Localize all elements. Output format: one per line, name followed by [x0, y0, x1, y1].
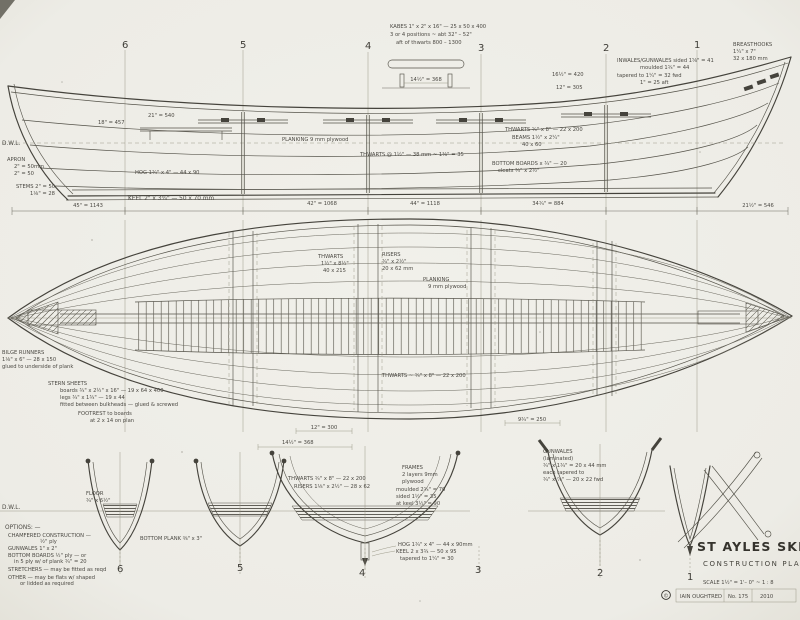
- keel-note: KEEL 2 x 3¾ — 50 x 95: [396, 549, 457, 555]
- stern-sheets-note: legs ¾" x 1¾" — 19 x 44: [60, 395, 126, 401]
- keel-note: KEEL 2" x 3¾" — 50 x 70 mm: [128, 196, 214, 202]
- bilge-runners-note: glued to underside of plank: [2, 364, 73, 370]
- dim-label: 44" = 1118: [410, 201, 440, 207]
- thwarts-note: THWARTS ¾" x 8" — 22 x 200: [287, 476, 366, 482]
- gunwales-note: (laminated): [543, 456, 573, 462]
- beams-note: 40 x 60: [522, 142, 542, 148]
- planking-note: 9 mm plywood: [428, 284, 466, 290]
- dim-label: 45" = 1143: [73, 203, 103, 209]
- stern-sheets-note: STERN SHEETS: [48, 381, 87, 387]
- dim-label: 34¾" = 884: [532, 201, 564, 207]
- footrest-note: at 2 x 14 on plan: [90, 418, 134, 424]
- kabe-note: KABES 1" x 2" x 16" — 25 x 50 x 400: [390, 24, 486, 30]
- options-heading: OPTIONS: —: [5, 525, 41, 531]
- frames-note: at keel 3½" = 90: [396, 500, 440, 507]
- inwales-note: 1" = 25 aft: [640, 80, 669, 86]
- frames-note: plywood: [402, 479, 424, 485]
- bottom-plank-note: BOTTOM PLANK ⅜" x 3": [140, 536, 202, 542]
- station-label: 1: [687, 572, 693, 583]
- bilge-runners-note: BILGE RUNNERS: [2, 350, 44, 356]
- bottom-boards-note: cleats ¾" x 2½": [498, 167, 540, 174]
- plan-dim: 12" = 300: [311, 425, 338, 431]
- station-label: 5: [240, 40, 246, 51]
- stern-sheets-note: fitted between bulkheads — glued & screw…: [60, 402, 178, 408]
- beams-note: BEAMS 1½" x 2¼": [512, 134, 560, 141]
- station-label: 3: [478, 43, 484, 54]
- thwarts-note: 1½" x 8½": [321, 260, 349, 267]
- dim-label: 42" = 1068: [307, 201, 337, 207]
- thwart-dim-note: THWARTS ¾" x 8" — 22 x 200: [504, 127, 583, 133]
- sheet-number: No. 175: [728, 594, 748, 600]
- gunwales-note: GUNWALES: [543, 449, 573, 455]
- kabe-detail-dim: 14½" = 368: [410, 76, 442, 83]
- drawing-subtitle: CONSTRUCTION PLAN: [703, 560, 800, 568]
- thwarts-size-note: THWARTS ~ ¾" x 8" — 22 x 200: [381, 373, 466, 379]
- apron-note: 2" = 50mm: [14, 164, 44, 170]
- dwl-label: D.W.L.: [2, 141, 20, 147]
- inwales-note: moulded 1¾" = 44: [640, 65, 690, 71]
- scale-note: SCALE 1½" = 1'– 0" ~ 1 : 8: [703, 579, 774, 586]
- dim-note: 21" = 540: [148, 113, 175, 119]
- breasthooks-note: 1¼" x 7": [733, 49, 756, 55]
- options-item: STRETCHERS — may be fitted as reqd: [8, 567, 106, 573]
- risers-note: RISERS: [382, 252, 401, 258]
- planking-note: PLANKING: [423, 277, 449, 283]
- kabe-note: 3 or 4 positions ~ abt 32" – 52": [390, 32, 472, 38]
- options-item: BOTTOM BOARDS ½" ply — or: [8, 552, 87, 559]
- risers-note: ¾" x 2½": [382, 258, 407, 265]
- floorboards-hatch: [135, 298, 645, 354]
- station-label: 3: [475, 565, 481, 576]
- keel-note: tapered to 1¼" = 30: [400, 556, 454, 562]
- designer-credit: IAIN OUGHTRED: [680, 594, 722, 600]
- hog-note: HOG 1¾" x 4" — 44 x 90: [135, 170, 199, 176]
- frames-note: FRAMES: [402, 465, 423, 471]
- options-item: GUNWALES 1" x 2": [8, 546, 57, 552]
- dim-note: 12" = 305: [556, 85, 583, 91]
- stems-note: 1⅛" = 28: [30, 191, 55, 197]
- construction-drawing-sheet: 6 5 4 3 2 1: [0, 0, 800, 620]
- apron-note: 2" = 50: [14, 171, 34, 177]
- drawing-year: 2010: [760, 594, 773, 600]
- inwales-note: INWALES/GUNWALES sided 1⅝" = 41: [617, 58, 714, 64]
- station-label: 6: [117, 564, 123, 575]
- apron-note: APRON: [7, 157, 25, 163]
- gunwales-note: ¾" x 1¾" = 20 x 44 mm: [543, 463, 606, 469]
- floor-note: FLOOR: [86, 491, 104, 497]
- thwarts-note: THWARTS: [317, 254, 343, 260]
- station-label: 4: [359, 568, 365, 579]
- breasthooks-note: BREASTHOOKS: [733, 42, 772, 48]
- inwales-note: tapered to 1¼" = 32 fwd: [617, 73, 682, 79]
- sections-dim: 14½" = 368: [282, 439, 314, 446]
- station-label: 4: [365, 41, 371, 52]
- dim-note: 18" = 457: [98, 120, 125, 126]
- copyright-symbol: ©: [663, 592, 668, 599]
- options-item: in 5 ply w/ of plank ¾" = 20: [14, 559, 87, 565]
- frames-note: moulded 2¾" = 70: [396, 487, 445, 493]
- frames-note: sided 1½" = 35: [396, 493, 437, 500]
- options-item: ½" ply: [40, 538, 57, 545]
- risers-note: 20 x 62 mm: [382, 266, 413, 272]
- planking-note: PLANKING 9 mm plywood: [282, 137, 348, 143]
- plan-dim: 9¾" = 250: [518, 417, 546, 423]
- thwarts-note: 40 x 215: [323, 268, 346, 274]
- options-item: or lidded as required: [20, 581, 74, 587]
- station-label: 6: [122, 40, 128, 51]
- station-label: 1: [694, 40, 700, 51]
- drawing-canvas: 6 5 4 3 2 1: [0, 0, 800, 620]
- breasthooks-note: 32 x 180 mm: [733, 56, 768, 62]
- thwarts-note: THWARTS @ 1½" — 38 mm ~ 1⅜" = 35: [359, 151, 464, 158]
- bottom-boards-note: BOTTOM BOARDS x ¾" — 20: [492, 161, 567, 167]
- station-label: 5: [237, 563, 243, 574]
- stems-note: STEMS 2" = 50: [16, 184, 55, 190]
- bilge-runners-note: 1⅛" x 6" — 28 x 150: [2, 357, 56, 363]
- dwl-label: D.W.L.: [2, 505, 20, 511]
- gunwales-note: each tapered to: [543, 470, 584, 476]
- footrest-note: FOOTREST to boards: [78, 411, 132, 417]
- risers-note: RISERS 1⅛" x 2½" — 28 x 62: [294, 483, 370, 490]
- frames-note: 2 layers 9mm: [402, 472, 438, 478]
- drawing-title: ST AYLES SKIFF: [697, 539, 800, 554]
- station-label: 2: [597, 568, 603, 579]
- stern-sheets-note: boards ¾" x 2½" x 16" — 19 x 64 x 400: [60, 387, 164, 394]
- kabe-note: aft of thwarts 800 – 1300: [396, 40, 462, 46]
- dim-note: 16½" = 420: [552, 71, 584, 78]
- gunwales-note: ¾" x ⅞" — 20 x 22 fwd: [543, 477, 603, 483]
- station-label: 2: [603, 43, 609, 54]
- floor-note: ¾" x 6½": [86, 497, 111, 504]
- dim-label: 21½" = 546: [742, 202, 774, 209]
- hog-note: HOG 1¾" x 4" — 44 x 90mm: [398, 542, 473, 548]
